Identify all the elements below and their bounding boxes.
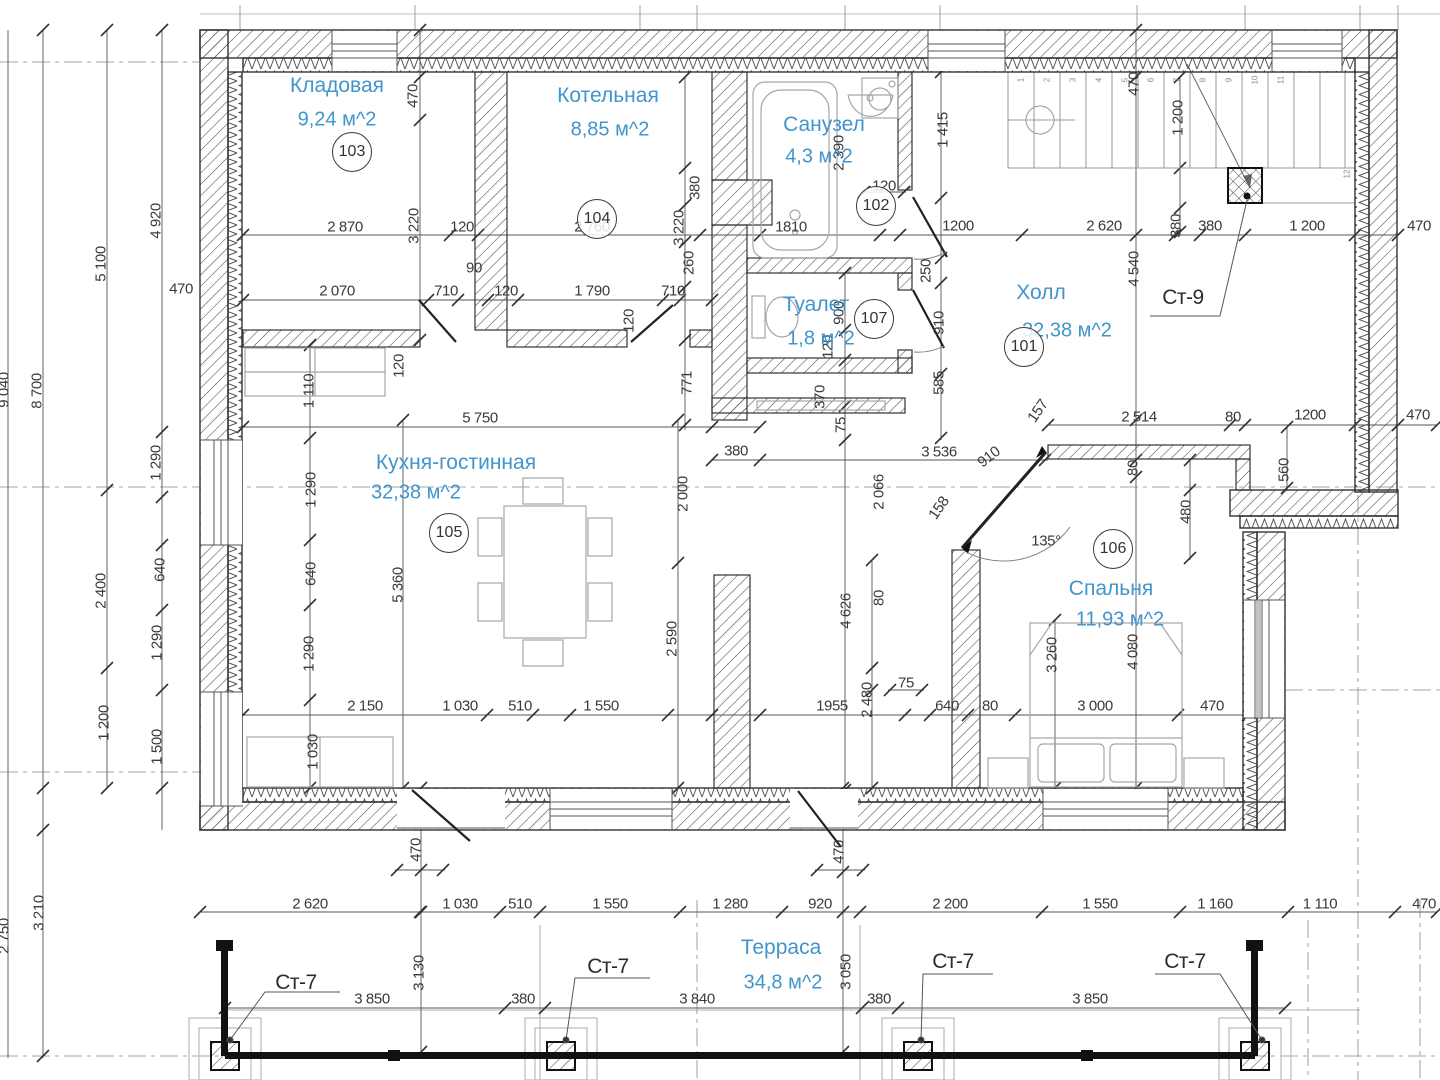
dimension-label: 1 550 — [583, 698, 619, 715]
dimension-label: 2 480 — [859, 682, 876, 718]
dimension-label: 470 — [1126, 72, 1143, 96]
dimension-label: 3 260 — [1044, 637, 1061, 673]
dimension-label: 2 590 — [664, 621, 681, 657]
room-area-label: 9,24 м^2 — [298, 109, 377, 132]
stair-step-number: 3 — [1069, 78, 1078, 82]
column-marker-label: Ст-7 — [932, 950, 973, 974]
dimension-label: 710 — [434, 283, 458, 300]
dimension-label: 3 210 — [31, 895, 48, 931]
dimension-label: 1 500 — [149, 729, 166, 765]
room-name-label: Спальня — [1069, 577, 1153, 601]
stair-step-number: 4 — [1095, 78, 1104, 82]
dimension-label: 480 — [1178, 500, 1195, 524]
room-number-badge: 102 — [856, 186, 896, 226]
dimension-label: 470 — [1412, 896, 1436, 913]
dimension-label: 260 — [681, 251, 698, 275]
dimension-label: 3 850 — [1072, 991, 1108, 1008]
dimension-label: 1 200 — [96, 705, 113, 741]
dimension-label: 250 — [918, 259, 935, 283]
column-marker-label: Ст-9 — [1162, 286, 1203, 310]
stair-step-number: 1 — [1017, 78, 1026, 82]
stair-step-number: 5 — [1121, 78, 1130, 82]
dimension-label: 380 — [1168, 214, 1185, 238]
room-area-label: 11,93 м^2 — [1076, 609, 1164, 632]
room-name-label: Холл — [1016, 281, 1066, 305]
dimension-label: 2 066 — [871, 474, 888, 510]
stair-step-number: 9 — [1225, 78, 1234, 82]
dimension-label: 1 550 — [1082, 896, 1118, 913]
dimension-label: 80 — [1125, 460, 1142, 476]
dimension-label: 1 110 — [301, 374, 318, 408]
room-area-label: 4,3 м^2 — [785, 146, 853, 169]
dimension-label: 470 — [169, 281, 193, 298]
dimension-label: 4 540 — [1126, 251, 1143, 287]
dimension-label: 510 — [508, 896, 532, 913]
dimension-label: 380 — [687, 176, 704, 200]
dining-table — [478, 478, 612, 666]
dimension-label: 3 220 — [406, 208, 423, 244]
dimension-label: 3 220 — [671, 210, 688, 246]
dimension-label: 710 — [661, 283, 685, 300]
dimension-label: 80 — [871, 590, 888, 606]
dimension-label: 640 — [303, 562, 320, 586]
dimension-label: 2 620 — [292, 896, 328, 913]
dimension-label: 470 — [1200, 698, 1224, 715]
dimension-label: 120 — [494, 283, 518, 300]
stair-step-number: 8 — [1199, 78, 1208, 82]
dimension-label: 1 290 — [301, 636, 318, 672]
room-name-label: Кухня-гостинная — [376, 451, 536, 475]
dimension-label: 120 — [450, 219, 474, 236]
dimension-label: 75 — [898, 675, 914, 692]
room-number-badge: 105 — [429, 513, 469, 553]
dimension-label: 9 040 — [0, 372, 13, 408]
stair-step-number: 2 — [1043, 78, 1052, 82]
dimension-label: 640 — [935, 698, 959, 715]
dimension-label: 2 750 — [0, 918, 13, 954]
dimension-label: 470 — [408, 838, 425, 862]
room-area-label: 34,8 м^2 — [744, 972, 823, 995]
dimension-label: 120 — [391, 354, 408, 378]
dimension-label: 1 550 — [592, 896, 628, 913]
dimension-label: 380 — [867, 991, 891, 1008]
dimension-label: 1 280 — [712, 896, 748, 913]
dimension-label: 380 — [511, 991, 535, 1008]
dimension-label: 80 — [1225, 409, 1241, 426]
room-area-label: 32,38 м^2 — [371, 482, 461, 505]
room-name-label: Туалет — [783, 293, 849, 317]
dimension-label: 3 840 — [679, 991, 715, 1008]
dimension-label: 3 050 — [838, 954, 855, 990]
room-number-badge: 106 — [1093, 529, 1133, 569]
dimension-label: 1 290 — [303, 472, 320, 508]
dimension-label: 3 130 — [411, 955, 428, 991]
dimension-label: 510 — [508, 698, 532, 715]
stair-step-number: 12 — [1343, 170, 1352, 179]
dimension-label: 1 290 — [148, 445, 165, 481]
dimension-label: 90 — [466, 260, 482, 277]
dimension-label: 135° — [1031, 533, 1060, 550]
dimension-label: 3 850 — [354, 991, 390, 1008]
toilet — [752, 296, 765, 338]
interior-walls — [243, 72, 1250, 788]
dimension-label: 920 — [808, 896, 832, 913]
dimension-label: 470 — [831, 840, 848, 864]
dimension-label: 4 080 — [1125, 634, 1142, 670]
floor-plan-drawing — [0, 0, 1440, 1080]
dimension-label: 1 030 — [442, 896, 478, 913]
dimension-label: 2 400 — [93, 573, 110, 609]
dimension-label: 560 — [1276, 458, 1293, 482]
dimension-label: 2 000 — [675, 476, 692, 512]
dimension-label: 8 700 — [29, 373, 46, 409]
dimension-label: 380 — [1198, 218, 1222, 235]
room-number-badge: 104 — [577, 199, 617, 239]
dimension-label: 1810 — [775, 219, 807, 236]
dimension-label: 2 620 — [1086, 218, 1122, 235]
dimension-label: 1955 — [816, 698, 848, 715]
column-marker-label: Ст-7 — [587, 955, 628, 979]
stair-step-number: 6 — [1147, 78, 1156, 82]
dimension-label: 1 110 — [1303, 896, 1337, 913]
dimension-label: 1 030 — [442, 698, 478, 715]
room-number-badge: 107 — [854, 299, 894, 339]
dimension-label: 380 — [724, 443, 748, 460]
dimension-label: 1 790 — [574, 283, 610, 300]
room-area-label: 8,85 м^2 — [571, 119, 650, 142]
dimension-label: 2 514 — [1121, 409, 1157, 426]
dimension-label: 370 — [812, 385, 829, 409]
column-marker-label: Ст-7 — [275, 971, 316, 995]
dimension-label: 1 200 — [1170, 100, 1187, 136]
dimension-label: 3 536 — [921, 444, 957, 461]
dimension-label: 3 000 — [1077, 698, 1113, 715]
stair-step-number: 7 — [1173, 78, 1182, 82]
dimension-label: 1200 — [942, 218, 974, 235]
room-name-label: Санузел — [783, 113, 865, 137]
dimension-label: 1200 — [1294, 407, 1326, 424]
room-number-badge: 103 — [332, 132, 372, 172]
room-area-label: 1,8 м^2 — [787, 328, 855, 351]
dimension-label: 2 200 — [932, 896, 968, 913]
room-name-label: Котельная — [557, 84, 659, 108]
dimension-label: 470 — [405, 84, 422, 108]
stair-step-number: 10 — [1251, 76, 1260, 85]
dimension-label: 75 — [833, 417, 850, 433]
dimension-label: 2 070 — [319, 283, 355, 300]
dimension-label: 5 750 — [462, 410, 498, 427]
dimension-label: 4 920 — [148, 203, 165, 239]
dimension-label: 2 870 — [327, 219, 363, 236]
dimension-label: 771 — [679, 371, 696, 395]
dimension-label: 1 160 — [1197, 896, 1233, 913]
dimension-label: 5 100 — [93, 246, 110, 282]
dimension-label: 640 — [152, 558, 169, 582]
dimension-label: 470 — [1406, 407, 1430, 424]
dimension-label: 1 200 — [1289, 218, 1325, 235]
floor-plan-canvas: 2 8701202 760181012012002 6203801 200470… — [0, 0, 1440, 1080]
room-number-badge: 101 — [1004, 327, 1044, 367]
dimension-label: 2 150 — [347, 698, 383, 715]
dimension-label: 585 — [931, 371, 948, 395]
dimension-label: 1 415 — [935, 112, 952, 148]
dimension-label: 4 626 — [838, 593, 855, 629]
dimension-label: 470 — [1407, 218, 1431, 235]
dimension-label: 1 290 — [149, 625, 166, 661]
room-name-label: Кладовая — [290, 74, 384, 98]
column-marker-label: Ст-7 — [1164, 950, 1205, 974]
dimension-label: 910 — [931, 311, 948, 335]
room-name-label: Терраса — [741, 936, 822, 960]
stair-step-number: 11 — [1277, 76, 1286, 84]
dimension-label: 1 030 — [305, 734, 322, 770]
dimension-label: 120 — [621, 309, 638, 333]
dimension-label: 5 360 — [390, 567, 407, 603]
dimension-label: 80 — [982, 698, 998, 715]
